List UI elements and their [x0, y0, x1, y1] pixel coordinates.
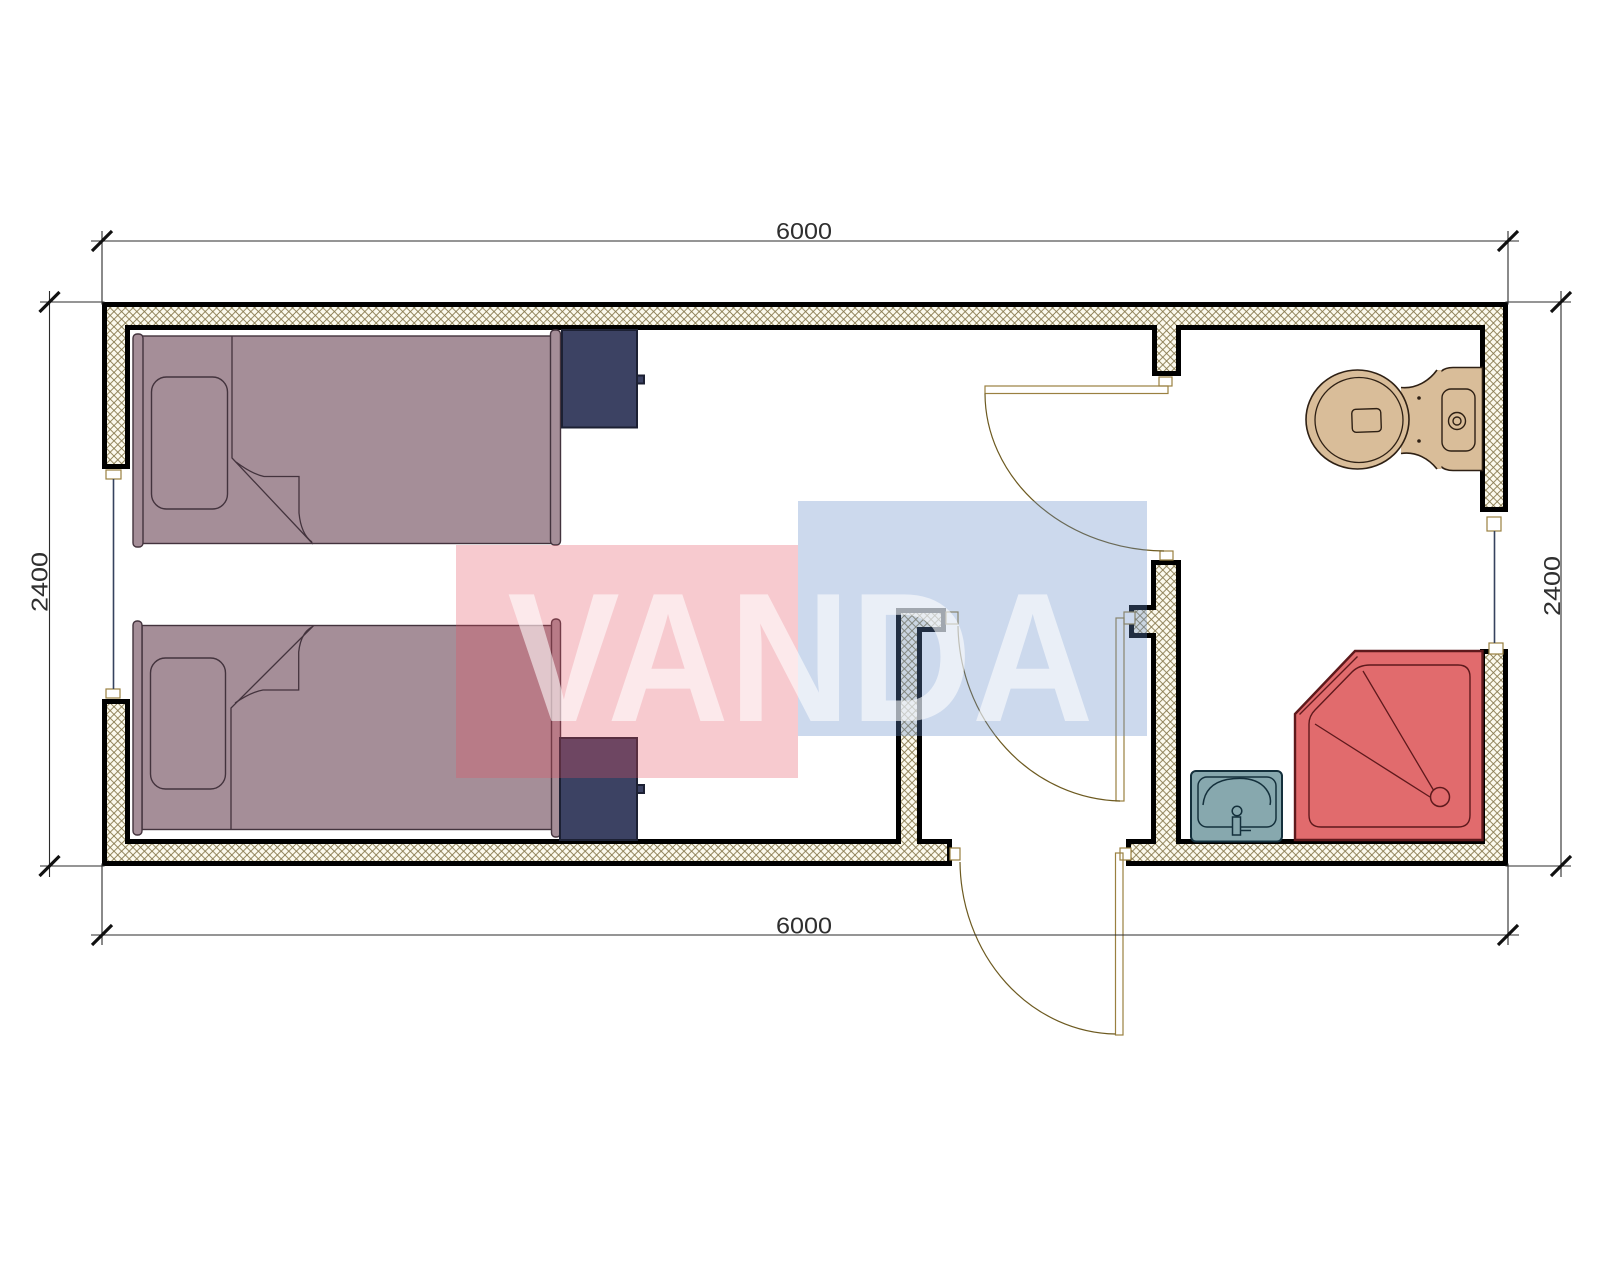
svg-text:2400: 2400 — [1539, 556, 1565, 616]
svg-text:6000: 6000 — [776, 913, 832, 939]
svg-text:6000: 6000 — [776, 218, 832, 244]
svg-text:2400: 2400 — [27, 552, 53, 612]
svg-text:VANDA: VANDA — [508, 554, 1094, 760]
